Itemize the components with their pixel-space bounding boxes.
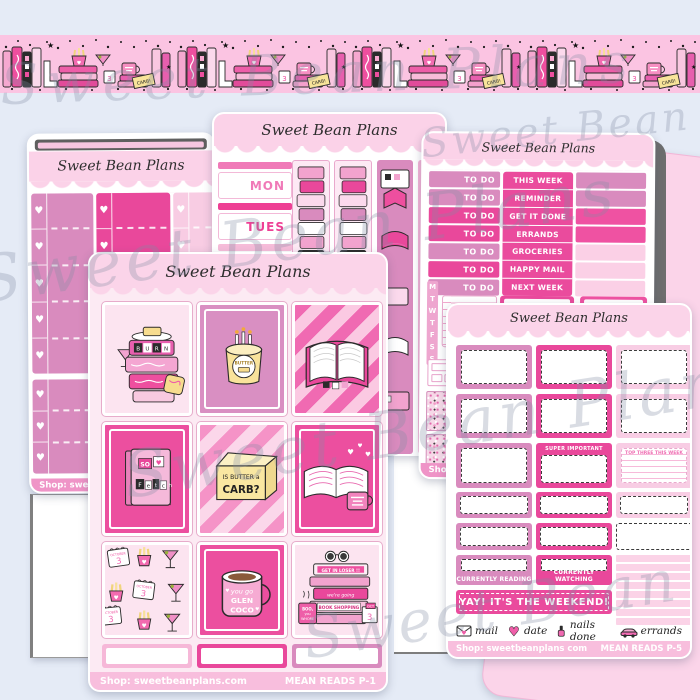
todo-row: TO DO	[428, 279, 499, 296]
list-label: NEXT WEEK	[502, 279, 572, 296]
color-bar	[575, 280, 645, 297]
svg-text:♥: ♥	[156, 459, 162, 467]
color-bar	[575, 244, 645, 261]
svg-text:♥: ♥	[461, 630, 466, 637]
brand-script: Sweet Bean Plans	[261, 121, 397, 139]
dashed-box-top-three: TOP THREE THIS WEEK	[616, 443, 692, 488]
svg-text:♥: ♥	[225, 588, 229, 594]
dashed-box	[456, 523, 532, 550]
scallop-edge	[448, 331, 690, 341]
date-sticker: ♥ date	[507, 624, 547, 638]
todo-row: TO DO	[429, 225, 500, 242]
svg-text:c: c	[162, 483, 165, 489]
todo-row: TO DO	[428, 261, 499, 278]
half-box	[102, 644, 192, 668]
todo-label-column: TO DO TO DO TO DO TO DO TO DO TO DO TO D…	[428, 171, 500, 298]
day-cover-mon: MON	[218, 172, 292, 199]
october-pattern-illustration: OCTOBER 3 ♥	[105, 545, 189, 635]
dashed-box	[536, 492, 612, 518]
dashed-box	[456, 443, 532, 488]
heart-column: ♥ ♥ ♥ ♥ ♥	[31, 194, 48, 374]
day-bar	[218, 162, 292, 169]
fullbox-glen-coco-mug: you go GLEN COCO ♥ ♥	[197, 542, 287, 638]
car-icon	[620, 625, 638, 638]
brand-script: Sweet Bean Plans	[510, 311, 628, 326]
svg-text:♥: ♥	[255, 607, 259, 613]
dashed-box	[536, 345, 612, 389]
sheet-header: Sweet Bean Plans	[214, 114, 445, 146]
dashed-box	[536, 523, 612, 550]
color-bar	[576, 190, 646, 207]
brand-script: Sweet Bean Plans	[165, 262, 310, 281]
color-bar	[576, 208, 646, 225]
dashed-box	[616, 492, 692, 518]
heart-checklist-box: ♥ ♥ ♥	[32, 379, 95, 473]
shop-url: Shop: sweetbeanplans com	[456, 644, 587, 654]
dashed-box	[616, 394, 692, 438]
list-label: HAPPY MAIL	[502, 261, 572, 279]
svg-text:OCT: OCT	[367, 605, 375, 609]
dashed-box-super-important: SUPER IMPORTANT	[536, 443, 612, 488]
todo-row: TO DO	[429, 189, 500, 206]
heart-icon: ♥	[96, 193, 111, 229]
svg-text:CARB?: CARB?	[223, 484, 260, 496]
list-label: GET IT DONE	[503, 207, 573, 225]
brand-script: Sweet Bean Plans	[57, 158, 184, 175]
list-labels-box: THIS WEEK REMINDER GET IT DONE ERRANDS G…	[502, 172, 573, 297]
half-box	[197, 644, 287, 668]
book-shopping-stack-illustration: GET IN LOSER !! we're going BOOK SHOPPIN…	[295, 545, 379, 635]
dashed-box	[456, 394, 532, 438]
fullbox-book-hearts-mug: ♥ ♥ ♥	[292, 422, 382, 536]
heart-column: ♥ ♥ ♥	[32, 380, 49, 474]
so-fetch-book-illustration: SO ♥ F e t c h	[105, 425, 189, 533]
dashed-box	[456, 345, 532, 389]
svg-text:F: F	[138, 482, 142, 489]
svg-text:N: N	[164, 347, 168, 353]
dashed-box	[536, 394, 612, 438]
weekend-banner: YAY! IT'S THE WEEKEND!	[456, 590, 612, 614]
heart-icon: ♥	[507, 624, 521, 638]
butter-carton-illustration: IS BUTTER a CARB?	[200, 425, 284, 533]
svg-text:you: you	[305, 612, 311, 616]
svg-text:BUTTER: BUTTER	[235, 361, 254, 366]
day-letters-strip: MT WT FS S	[426, 281, 438, 365]
sheet-mean-reads-p5: Sweet Bean Plans SUPER IMPORTANT TOP THR…	[446, 303, 692, 659]
thin-bars-stack	[616, 555, 692, 625]
heart-icon: ♥	[32, 380, 47, 412]
sheet-footer: Shop: sweetbeanplans com MEAN READS P-5	[448, 641, 690, 657]
shop-url: Shop: sweetbeanplans.com	[100, 676, 247, 687]
fullbox-open-book-stripes	[292, 302, 382, 416]
list-label: GROCERIES	[502, 243, 572, 261]
svg-text:♥: ♥	[365, 451, 371, 459]
currently-watching-box: CURRENTLY WATCHING	[536, 555, 612, 585]
open-book-mug-illustration: ♥ ♥ ♥	[295, 425, 379, 533]
day-cover-tues: TUES	[218, 213, 292, 240]
svg-text:GLEN: GLEN	[231, 596, 253, 605]
svg-text:♥: ♥	[358, 442, 363, 449]
nails-done-sticker: nails done	[556, 619, 610, 643]
svg-text:COCO: COCO	[230, 605, 254, 614]
white-backing-page	[30, 494, 94, 658]
burn-book-stack-illustration: B U R N	[105, 305, 189, 413]
currently-reading-box: CURRENTLY READING	[456, 555, 532, 585]
sheet-header: Sweet Bean Plans	[29, 150, 213, 181]
list-label: REMINDER	[503, 190, 573, 208]
svg-text:R: R	[155, 347, 159, 353]
fullbox-butter-carton: IS BUTTER a CARB?	[197, 422, 287, 536]
todo-row: TO DO	[429, 171, 500, 188]
scallop-edge	[214, 146, 445, 158]
fullbox-pattern: OCTOBER 3 ♥	[102, 542, 192, 638]
sheet-header: Sweet Bean Plans	[448, 305, 690, 331]
svg-text:♥: ♥	[508, 625, 520, 638]
mail-icon: ♥	[456, 624, 472, 638]
heart-icon: ♥	[32, 338, 47, 373]
svg-text:U: U	[145, 347, 149, 353]
day-bar	[218, 203, 292, 210]
glen-coco-mug-illustration: you go GLEN COCO ♥ ♥	[200, 545, 284, 635]
svg-text:GET IN LOSER !!: GET IN LOSER !!	[322, 568, 360, 574]
fullbox-butter-candle: BUTTER	[197, 302, 287, 416]
sheet-header: Sweet Bean Plans	[90, 254, 386, 288]
scallop-edge	[90, 288, 386, 300]
half-box	[292, 644, 382, 668]
clip-bar	[35, 138, 207, 150]
sheet-footer: Shop: sweetbeanplans.com MEAN READS P-1	[90, 672, 386, 690]
svg-text:WHORE: WHORE	[301, 617, 314, 621]
sheet-mean-reads-p1: Sweet Bean Plans B U	[88, 252, 388, 692]
dashed-box	[616, 345, 692, 389]
fullbox-so-fetch-book: SO ♥ F e t c h	[102, 422, 192, 536]
list-label: ERRANDS	[503, 225, 573, 243]
svg-text:BOOK SHOPPING: BOOK SHOPPING	[319, 605, 360, 611]
kit-code: MEAN READS P-5	[600, 644, 682, 654]
kit-code: MEAN READS P-1	[285, 676, 376, 687]
svg-text:SO: SO	[140, 461, 150, 468]
heart-icon: ♥	[31, 230, 46, 266]
svg-text:B: B	[136, 347, 140, 353]
todo-row: TO DO	[429, 207, 500, 224]
script-icon-stickers: ♥ mail ♥ date nails done	[456, 619, 682, 643]
list-label: THIS WEEK	[503, 172, 573, 190]
heart-icon: ♥	[33, 443, 48, 474]
heart-checklist-box: ♥ ♥ ♥ ♥ ♥	[31, 193, 94, 373]
sheet-header: Sweet Bean Plans	[423, 133, 653, 161]
heart-icon: ♥	[33, 411, 48, 443]
svg-text:h: h	[169, 483, 173, 489]
plain-dashed-box	[616, 523, 692, 550]
svg-text:e: e	[147, 483, 151, 489]
svg-text:♥: ♥	[347, 448, 354, 457]
washi-banner: ♥ 3 CA	[0, 35, 700, 93]
nail-polish-icon	[556, 623, 566, 639]
open-book-illustration	[295, 305, 379, 413]
todo-row: TO DO	[428, 243, 499, 260]
heart-icon: ♥	[32, 266, 47, 302]
heart-icon: ♥	[31, 194, 46, 230]
day-bar	[218, 244, 292, 251]
svg-text:IS BUTTER a: IS BUTTER a	[223, 474, 260, 481]
scallop-edge	[423, 159, 653, 171]
errands-sticker: errands	[620, 625, 682, 638]
fullbox-burn-book-stack: B U R N	[102, 302, 192, 416]
sticker-kit-mockup: ♥ 3 CA	[0, 0, 700, 700]
color-bar	[576, 226, 646, 243]
svg-text:you go: you go	[230, 588, 253, 596]
svg-text:BOO,: BOO,	[302, 607, 314, 612]
svg-text:3: 3	[367, 612, 372, 622]
heart-icon: ♥	[173, 193, 188, 229]
brand-script: Sweet Bean Plans	[482, 139, 596, 155]
color-bar	[576, 172, 646, 189]
svg-text:we're going: we're going	[327, 593, 354, 599]
dashed-box	[456, 492, 532, 518]
mail-sticker: ♥ mail	[456, 624, 498, 638]
color-bars-column	[575, 172, 646, 299]
fullbox-book-shopping-stack: GET IN LOSER !! we're going BOOK SHOPPIN…	[292, 542, 382, 638]
butter-candle-illustration: BUTTER	[200, 305, 284, 413]
heart-icon: ♥	[32, 302, 47, 338]
color-bar	[575, 262, 645, 279]
